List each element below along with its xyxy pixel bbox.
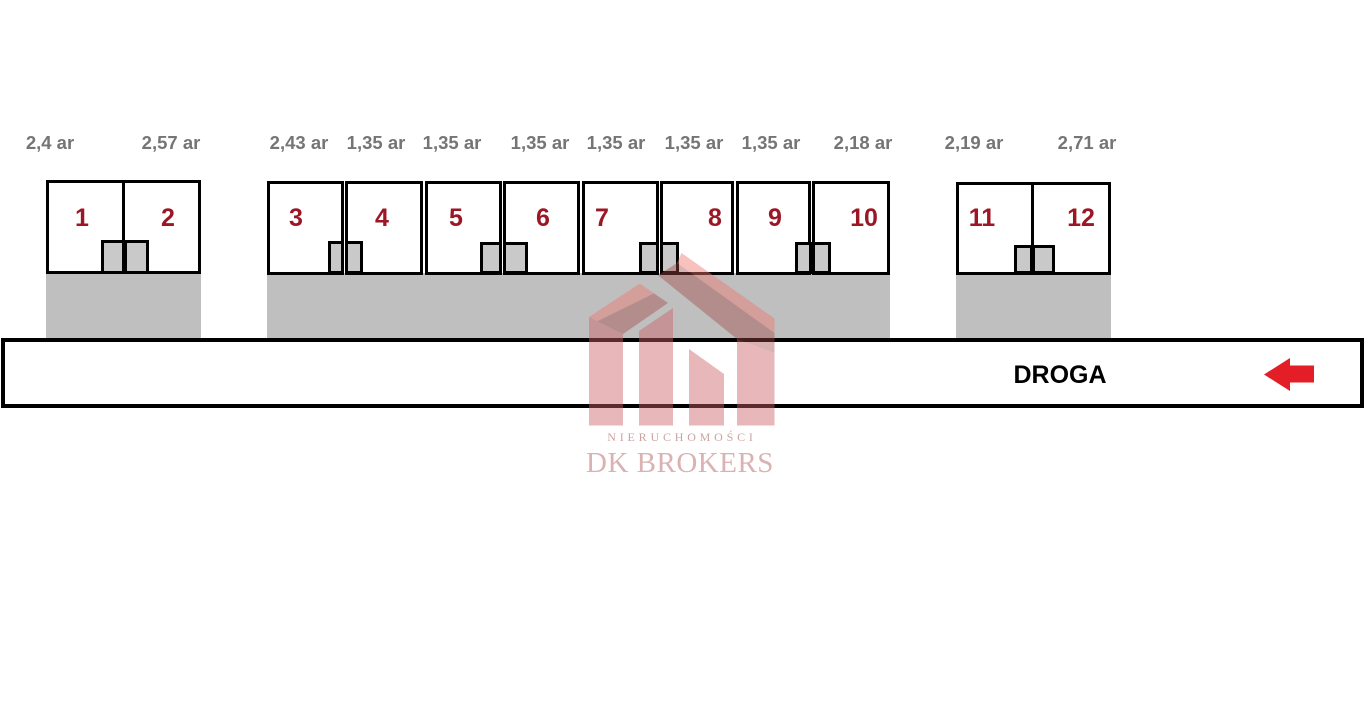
svg-text:NIERUCHOMOŚCI: NIERUCHOMOŚCI bbox=[607, 430, 756, 444]
svg-text:DK BROKERS: DK BROKERS bbox=[586, 447, 774, 479]
